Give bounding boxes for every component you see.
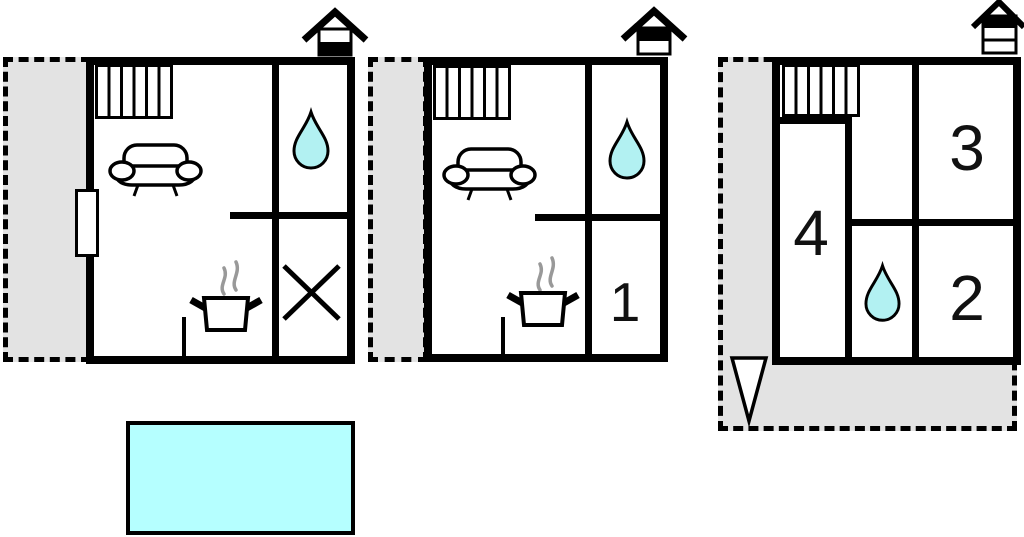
interior-wall (777, 117, 851, 124)
interior-wall (272, 57, 279, 364)
swimming-pool (126, 421, 355, 535)
terrace-middle (368, 57, 428, 362)
cross-marker-icon (281, 263, 342, 322)
stove-pot-icon (188, 290, 264, 334)
interior-wall (845, 117, 852, 365)
water-drop-icon (608, 120, 646, 180)
interior-wall (230, 212, 355, 219)
radiator-icon (433, 65, 511, 120)
floor-plan: 1 3 4 2 (0, 0, 1024, 537)
room-label-1: 1 (600, 272, 650, 332)
sofa-icon (108, 142, 203, 198)
radiator-icon (95, 64, 173, 119)
interior-wall (535, 214, 668, 221)
kitchen-stub-wall (182, 317, 186, 364)
house-level-upper-icon (621, 8, 687, 56)
interior-wall (585, 57, 592, 362)
radiator-icon (782, 64, 860, 117)
interior-wall (912, 57, 919, 365)
house-level-top-icon (972, 0, 1024, 55)
room-label-2: 2 (937, 265, 997, 331)
stove-pot-icon (505, 285, 581, 329)
house-level-ground-icon (302, 9, 368, 57)
north-arrow-icon (729, 355, 769, 425)
water-drop-icon (292, 110, 330, 170)
interior-wall (848, 219, 1021, 226)
room-label-4: 4 (781, 200, 841, 266)
water-drop-icon (864, 263, 901, 323)
door (75, 189, 99, 257)
sofa-icon (442, 146, 537, 202)
room-label-3: 3 (937, 115, 997, 181)
